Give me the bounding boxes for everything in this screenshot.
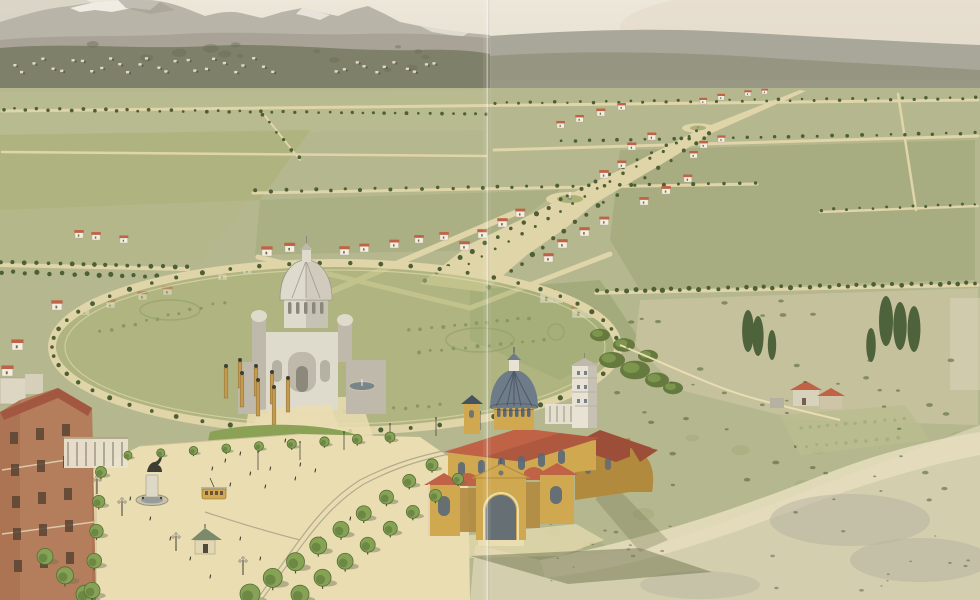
- tree: [493, 102, 496, 105]
- tree: [227, 110, 231, 114]
- ring-tree: [408, 264, 413, 269]
- villa-window: [703, 145, 704, 147]
- villa-window: [501, 223, 503, 225]
- ring-tree: [52, 354, 56, 358]
- tree: [275, 131, 278, 134]
- villa-window: [519, 213, 521, 215]
- tree: [522, 220, 526, 224]
- lamp-globe: [99, 479, 101, 481]
- ring-tree: [228, 422, 233, 427]
- villa-window: [418, 239, 419, 241]
- town-tree: [416, 72, 418, 74]
- ring-tree: [438, 267, 442, 271]
- tree: [259, 109, 263, 113]
- tree: [2, 108, 6, 112]
- tree: [540, 185, 543, 188]
- brick-building-part: [20, 388, 92, 600]
- tree-depth: [311, 543, 320, 552]
- mottle: [614, 391, 620, 394]
- mottle: [863, 376, 869, 379]
- pylon-statue: [224, 364, 228, 368]
- gateway-pylon: [224, 364, 228, 398]
- tree: [115, 109, 119, 113]
- mottle: [879, 490, 882, 492]
- campanile-windows-part: [584, 371, 587, 375]
- tree: [830, 134, 834, 138]
- figure: [212, 467, 213, 470]
- ring-tree: [174, 414, 179, 419]
- building-windows-part: [66, 552, 74, 564]
- tree-depth: [381, 495, 389, 503]
- tree: [858, 207, 860, 209]
- villa-window: [443, 236, 444, 238]
- tree: [103, 263, 107, 267]
- building-windows-part: [38, 492, 46, 504]
- tree: [602, 201, 605, 204]
- town-house: [432, 62, 435, 64]
- pylon-statue: [240, 371, 244, 375]
- tree: [920, 283, 924, 287]
- villa-roof: [439, 232, 449, 235]
- town-house: [20, 71, 23, 73]
- town-house: [145, 57, 148, 59]
- ring-tree: [257, 264, 262, 269]
- tree: [559, 210, 562, 213]
- campanile-windows-part: [577, 371, 580, 375]
- town-house: [252, 57, 255, 59]
- villa-window: [95, 236, 96, 238]
- villa-window: [6, 371, 8, 374]
- villa-roof: [414, 235, 424, 238]
- tree: [579, 100, 582, 103]
- tree: [670, 159, 673, 162]
- tree: [147, 108, 151, 112]
- tree: [285, 188, 289, 192]
- tree: [662, 150, 665, 153]
- villa-window: [720, 97, 721, 99]
- town-house: [81, 60, 84, 62]
- mottle: [896, 389, 900, 391]
- lamp-globe: [121, 498, 123, 500]
- tree: [753, 286, 758, 291]
- tree: [452, 187, 455, 190]
- tree: [494, 248, 497, 251]
- figure: [230, 483, 231, 486]
- villa-roof: [119, 236, 128, 239]
- villa-roof: [647, 133, 656, 136]
- tree: [760, 136, 763, 139]
- ring-tree: [558, 395, 563, 400]
- ring-tree: [538, 287, 542, 291]
- town-tree: [215, 59, 217, 61]
- villa-roof: [459, 241, 469, 244]
- town-tree: [23, 72, 25, 74]
- tree: [679, 137, 683, 141]
- tree: [253, 188, 257, 192]
- tree: [571, 185, 574, 188]
- town-tree: [121, 64, 123, 66]
- villa-window: [621, 107, 622, 109]
- tree: [595, 288, 599, 292]
- villa-roof: [1, 365, 13, 369]
- mottle: [760, 314, 765, 317]
- ring-tree: [150, 409, 154, 413]
- villa-window: [621, 165, 622, 167]
- villa-roof: [579, 227, 589, 230]
- tree: [765, 100, 768, 103]
- mottle: [744, 478, 750, 482]
- villa-window: [603, 221, 605, 223]
- villa-window: [651, 137, 652, 139]
- villa-roof: [74, 230, 84, 233]
- tree: [281, 110, 284, 113]
- town-tree: [395, 62, 397, 64]
- town-house: [406, 68, 409, 70]
- campanile-windows-part: [584, 385, 587, 389]
- pole-top: [343, 431, 345, 433]
- town-house: [234, 71, 237, 73]
- tree: [753, 98, 755, 100]
- ring-tree: [378, 427, 383, 432]
- tree-depth: [335, 527, 344, 536]
- town-tree: [74, 60, 76, 62]
- grove-light: [623, 363, 640, 374]
- grove: [620, 361, 650, 380]
- tree: [588, 139, 591, 142]
- mottle: [810, 313, 816, 316]
- drum-colonnade-part: [509, 408, 513, 417]
- villa: [51, 300, 62, 310]
- mottle: [832, 498, 835, 500]
- tree: [629, 183, 633, 187]
- villa-window: [547, 258, 549, 260]
- clerestory-windows-part: [538, 453, 545, 467]
- tree: [656, 166, 660, 170]
- mottle: [671, 484, 675, 486]
- tree: [405, 186, 408, 189]
- tree: [660, 288, 665, 293]
- tree: [889, 98, 892, 101]
- tree-depth: [255, 445, 260, 450]
- tree: [289, 148, 293, 152]
- villa: [599, 217, 609, 225]
- votive-monument-part: [337, 314, 353, 326]
- tree: [722, 182, 725, 185]
- ring-tree: [601, 318, 605, 322]
- town-tree: [148, 59, 150, 61]
- figure: [130, 497, 131, 500]
- mottle: [836, 383, 840, 385]
- villa-window: [747, 93, 748, 95]
- mottle: [603, 530, 607, 532]
- pale-wall: [950, 298, 980, 390]
- grove: [599, 352, 625, 368]
- tree: [955, 282, 960, 287]
- tree: [205, 110, 209, 114]
- villa: [284, 243, 295, 252]
- tree: [507, 240, 510, 243]
- town-tree: [435, 64, 437, 66]
- town-tree: [93, 71, 95, 73]
- tree: [694, 141, 698, 145]
- tree: [525, 185, 528, 188]
- tree-depth: [157, 451, 162, 456]
- mottle: [873, 476, 876, 478]
- tree: [973, 282, 977, 286]
- tree: [658, 138, 661, 141]
- tree: [509, 269, 513, 273]
- tree: [682, 149, 686, 153]
- town-tree: [190, 60, 192, 62]
- tree: [541, 102, 543, 104]
- tree: [845, 208, 848, 211]
- mottle: [803, 381, 807, 383]
- votive-monument-part: [251, 310, 267, 322]
- tree: [773, 135, 776, 138]
- tree: [436, 186, 439, 189]
- villa-roof: [575, 115, 584, 117]
- tree: [474, 112, 477, 115]
- town-house: [118, 63, 121, 65]
- fold-line: [483, 0, 491, 600]
- tree: [173, 265, 178, 270]
- tree: [741, 100, 744, 103]
- building-windows-part: [65, 520, 73, 532]
- villa: [761, 89, 768, 94]
- pole-top: [389, 423, 391, 425]
- town-tree: [244, 66, 246, 68]
- mottle: [785, 412, 789, 414]
- mottle: [669, 526, 672, 528]
- tree: [913, 98, 916, 101]
- tree: [635, 165, 638, 168]
- town-house: [205, 68, 208, 70]
- figure: [270, 467, 271, 470]
- tree: [702, 136, 706, 140]
- scrubland-part: [770, 494, 930, 546]
- tree: [574, 139, 578, 143]
- tree: [664, 100, 667, 103]
- mottle: [669, 452, 676, 456]
- mottle: [626, 347, 629, 349]
- poplar: [742, 310, 754, 352]
- building-windows-part: [14, 560, 22, 572]
- villa-roof: [556, 121, 565, 123]
- tree-depth: [91, 529, 98, 536]
- lamp-globe: [178, 536, 180, 538]
- ring-tree: [76, 310, 80, 314]
- statue-monument-part: [142, 497, 144, 499]
- villa-window: [631, 147, 632, 149]
- tree: [696, 287, 701, 292]
- villa: [579, 227, 589, 236]
- tree: [732, 136, 735, 139]
- tree: [594, 180, 598, 184]
- tree: [903, 133, 907, 137]
- villa-roof: [284, 243, 295, 246]
- town-house: [392, 61, 395, 63]
- tree: [650, 151, 653, 154]
- mottle: [550, 580, 552, 581]
- tree: [596, 203, 601, 208]
- tree: [467, 185, 470, 188]
- tree: [813, 99, 816, 102]
- tree: [405, 111, 409, 115]
- town-house: [100, 67, 103, 69]
- tree: [838, 98, 841, 101]
- poplar: [879, 296, 893, 346]
- villa-window: [288, 248, 290, 251]
- corner-tower: [338, 322, 352, 362]
- tree: [185, 265, 189, 269]
- mottle: [878, 389, 882, 391]
- mottle: [697, 367, 704, 371]
- town-tree: [274, 72, 276, 74]
- building-windows-part: [37, 460, 45, 472]
- tree: [82, 107, 86, 111]
- figure: [295, 477, 296, 480]
- tree: [561, 229, 566, 234]
- villa-window: [363, 248, 365, 250]
- pole-top: [435, 417, 437, 419]
- villa: [617, 103, 626, 110]
- ring-tree: [50, 345, 54, 349]
- town-tree: [129, 72, 131, 74]
- villa-window: [343, 251, 345, 253]
- mottle: [948, 359, 955, 363]
- mottle: [964, 565, 968, 567]
- tree: [602, 139, 605, 142]
- tree: [458, 255, 463, 260]
- ring-tree: [348, 261, 352, 265]
- tree: [131, 273, 135, 277]
- villa: [459, 241, 469, 250]
- town-tree: [428, 65, 430, 67]
- tree: [463, 112, 466, 115]
- tree: [293, 111, 296, 114]
- mottle: [887, 573, 890, 575]
- tree: [845, 134, 849, 138]
- tree: [305, 110, 308, 113]
- villa-roof: [627, 143, 636, 146]
- tree: [34, 261, 38, 265]
- tree: [11, 269, 15, 273]
- drum-arches-part: [288, 302, 292, 314]
- tree: [496, 185, 500, 189]
- town-house: [157, 67, 160, 69]
- kiosk-door: [203, 544, 208, 553]
- town-tree: [63, 71, 65, 73]
- town-tree: [112, 59, 114, 61]
- villa-window: [393, 244, 395, 246]
- poplar-canopy: [879, 296, 893, 346]
- figure: [265, 485, 266, 488]
- ring-tree: [200, 270, 205, 275]
- campanile-windows-part: [577, 399, 580, 403]
- tree: [300, 189, 303, 192]
- town-tree: [44, 59, 46, 61]
- poplar: [908, 306, 921, 352]
- tree-depth: [362, 542, 370, 550]
- votive-monument-part: [306, 296, 328, 328]
- town-house: [375, 71, 378, 73]
- tree-depth: [39, 554, 48, 563]
- drum-colonnade-part: [521, 408, 525, 417]
- lantern: [302, 250, 311, 262]
- lamp-globe: [245, 560, 247, 562]
- parish-church-part: [550, 486, 562, 504]
- tree: [961, 203, 964, 206]
- tree: [114, 263, 118, 267]
- parish-church-part: [588, 366, 597, 428]
- tree: [938, 282, 943, 287]
- town-tree: [226, 63, 228, 65]
- villa: [439, 232, 449, 240]
- town-tree: [338, 72, 340, 74]
- lamp-globe: [175, 533, 177, 535]
- villa-roof: [639, 197, 649, 200]
- figure: [350, 517, 351, 520]
- tree: [372, 111, 375, 114]
- tree: [534, 225, 537, 228]
- ring-tree: [409, 426, 413, 430]
- figure: [315, 469, 316, 472]
- mottle: [422, 55, 430, 59]
- mottle: [87, 41, 99, 48]
- tree: [615, 138, 619, 142]
- tree: [269, 189, 273, 193]
- tree: [143, 275, 147, 279]
- tree: [615, 193, 619, 197]
- votive-monument-part: [320, 360, 330, 382]
- tree: [194, 109, 197, 112]
- poplar-canopy: [752, 316, 763, 356]
- tree: [506, 101, 508, 103]
- villa: [414, 235, 424, 243]
- town-house: [174, 60, 177, 62]
- tree: [23, 271, 27, 275]
- lamp-globe: [172, 536, 174, 538]
- building-windows-part: [13, 528, 21, 540]
- villa-roof: [389, 240, 399, 243]
- villa: [596, 109, 605, 116]
- drum-colonnade-part: [503, 408, 507, 417]
- tree: [832, 207, 835, 210]
- grove: [663, 382, 683, 394]
- figure: [150, 517, 151, 520]
- tree: [362, 112, 365, 115]
- tree: [629, 138, 632, 141]
- villa: [661, 186, 671, 194]
- tree: [47, 272, 51, 276]
- pylon-statue: [286, 376, 290, 380]
- ring-tree: [492, 275, 497, 280]
- tree-depth: [86, 588, 95, 597]
- tree: [394, 112, 397, 115]
- tree: [648, 183, 651, 186]
- villa: [557, 239, 567, 248]
- ring-tree: [589, 309, 594, 314]
- tree: [890, 133, 893, 136]
- town-tree: [16, 65, 18, 67]
- building-windows-part: [10, 432, 18, 444]
- villa-roof: [497, 218, 507, 221]
- villa-roof: [617, 161, 626, 164]
- town-tree: [54, 69, 56, 71]
- villa-roof: [617, 103, 626, 105]
- town-house: [356, 61, 359, 63]
- tree: [828, 285, 832, 289]
